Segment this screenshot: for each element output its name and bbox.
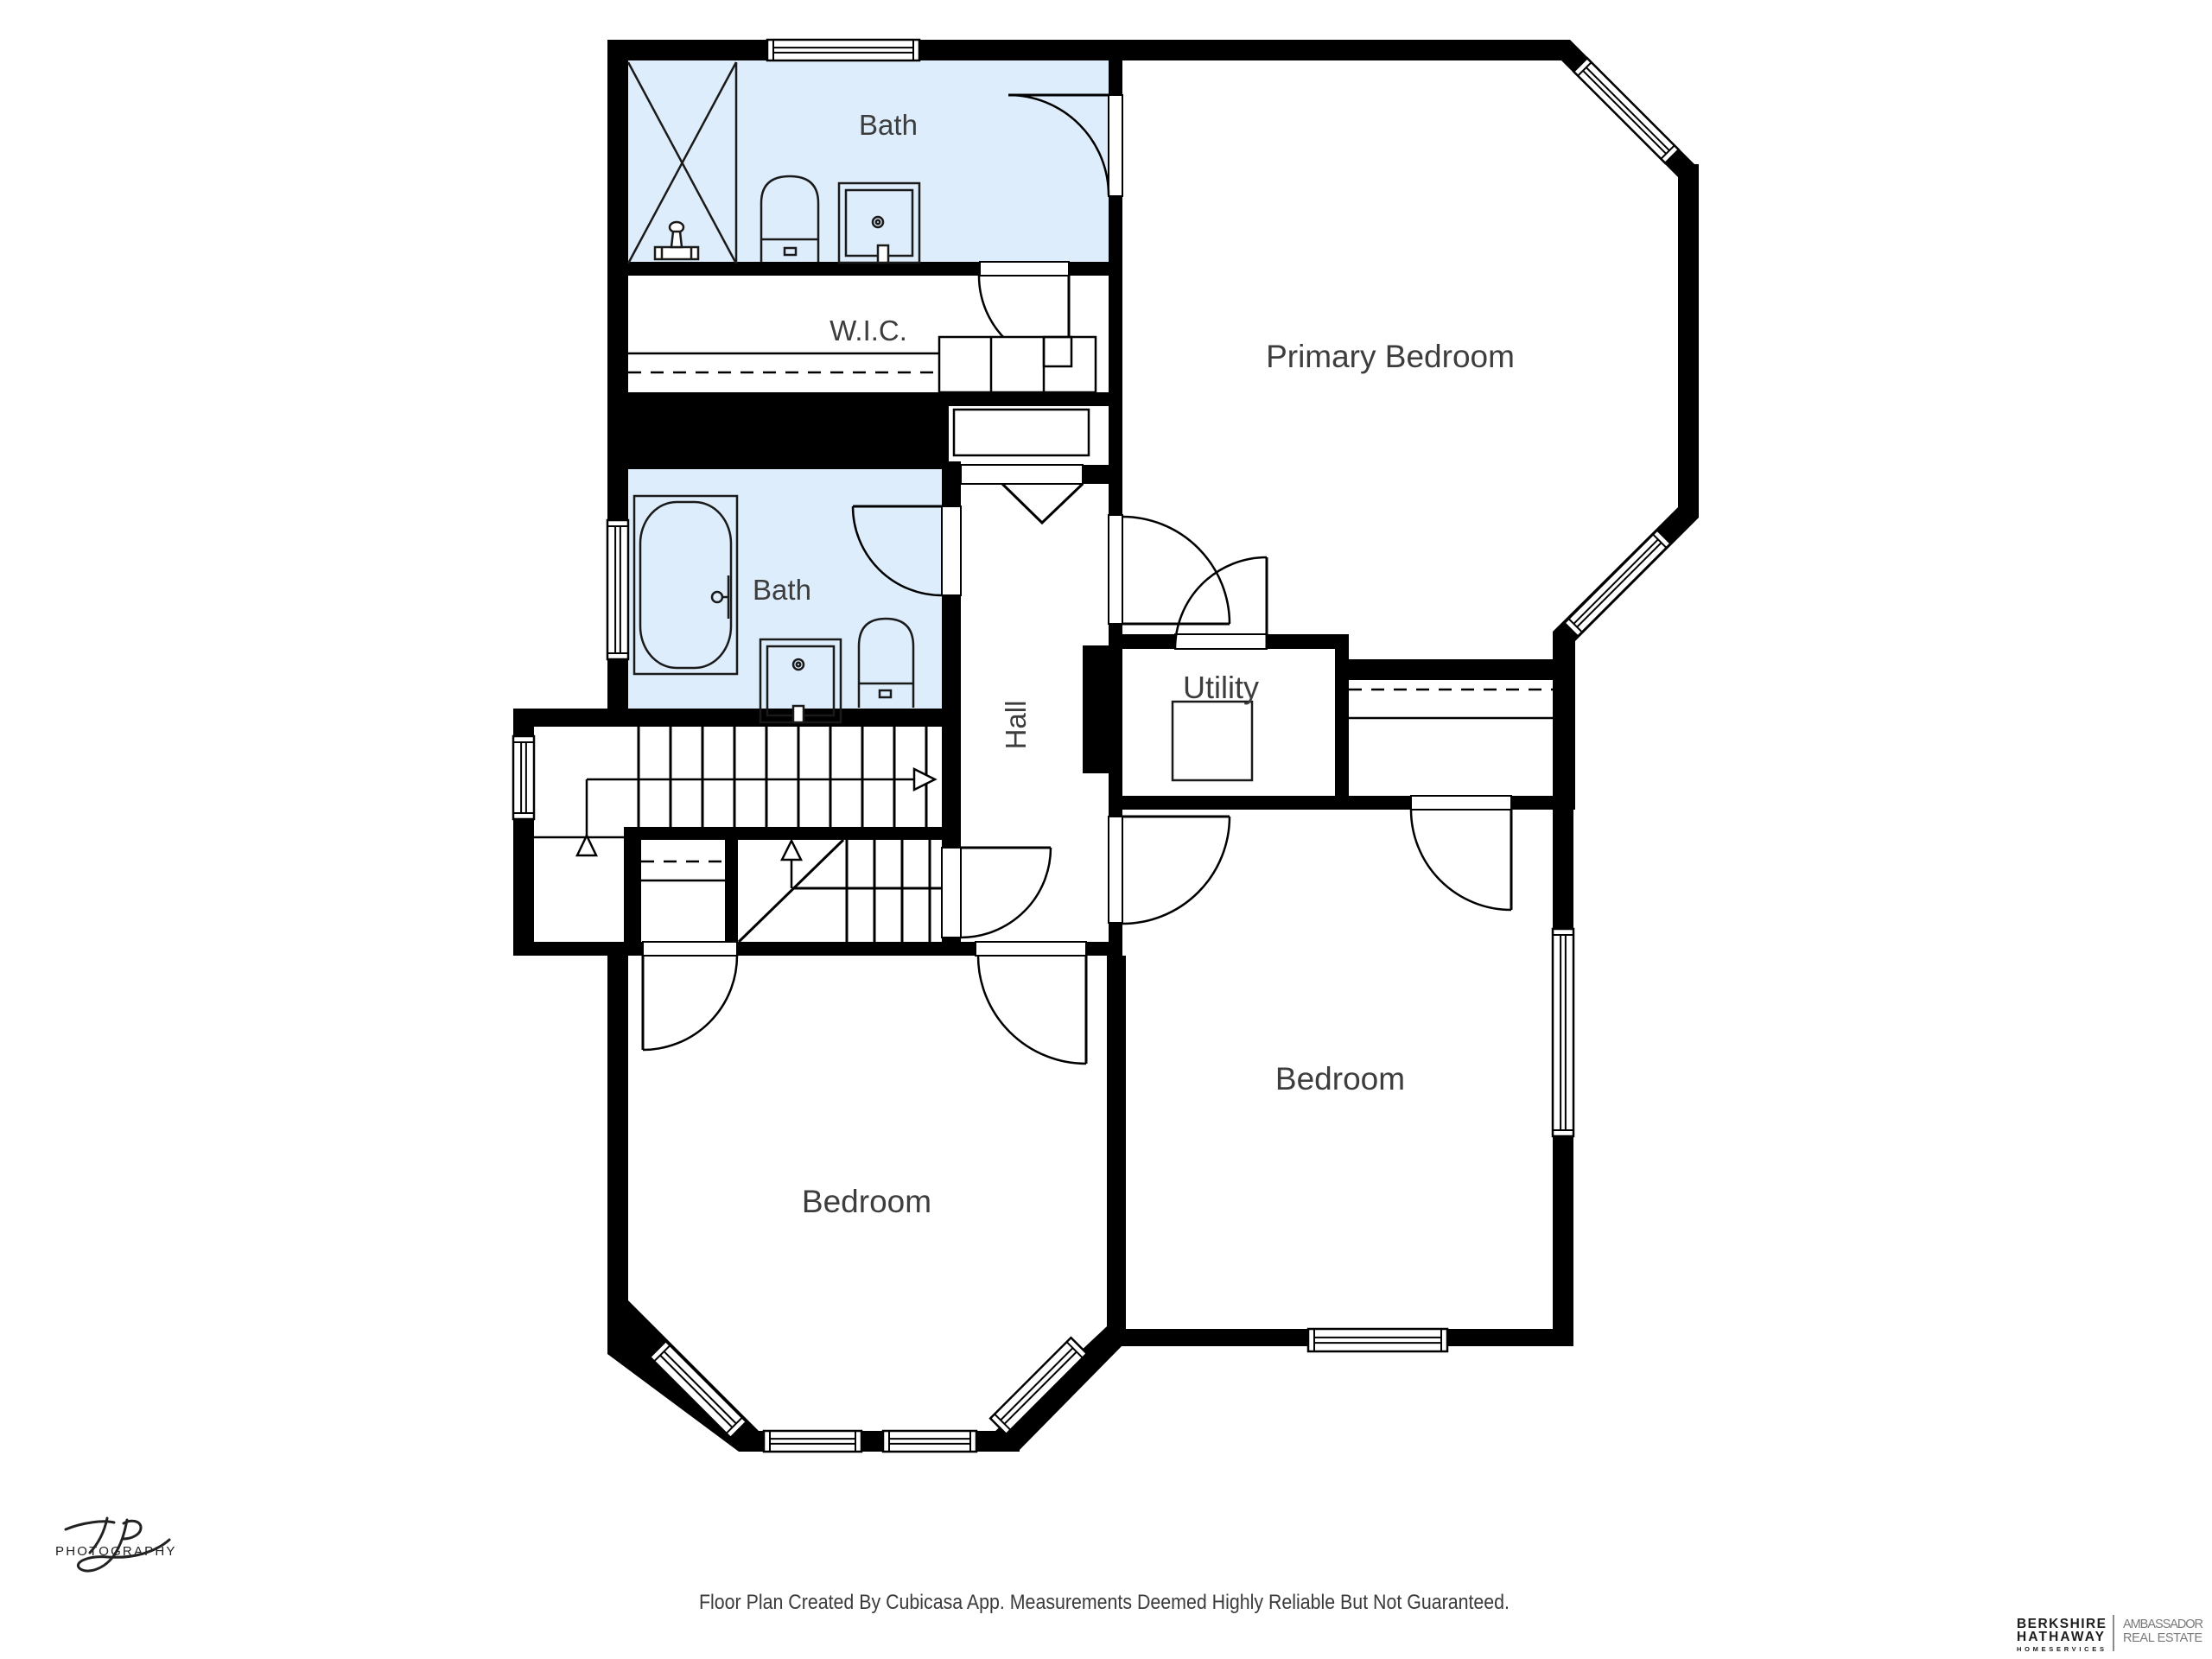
svg-text:Hall: Hall <box>1000 701 1032 750</box>
svg-text:HATHAWAY: HATHAWAY <box>2017 1630 2105 1644</box>
svg-text:W.I.C.: W.I.C. <box>829 315 907 346</box>
svg-text:Primary Bedroom: Primary Bedroom <box>1266 339 1515 374</box>
svg-text:Floor Plan Created By Cubicasa: Floor Plan Created By Cubicasa App. Meas… <box>699 1591 1510 1614</box>
svg-text:Bath: Bath <box>859 109 918 141</box>
svg-text:Bedroom: Bedroom <box>802 1184 931 1219</box>
svg-text:AMBASSADOR: AMBASSADOR <box>2123 1618 2203 1631</box>
svg-text:Bath: Bath <box>753 574 811 606</box>
svg-text:REAL ESTATE: REAL ESTATE <box>2123 1631 2202 1645</box>
svg-text:Bedroom: Bedroom <box>1275 1061 1405 1096</box>
svg-text:Utility: Utility <box>1183 670 1259 705</box>
